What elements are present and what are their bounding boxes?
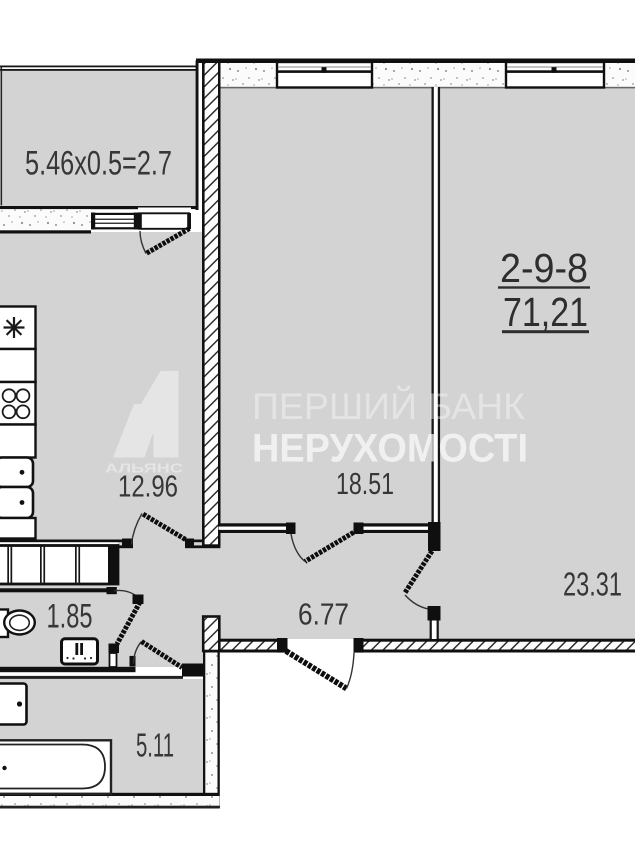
svg-text:5.11: 5.11: [136, 728, 174, 765]
svg-text:ПЕРШИЙ БАНК: ПЕРШИЙ БАНК: [252, 385, 525, 427]
svg-text:23.31: 23.31: [563, 567, 622, 604]
svg-text:2-9-8: 2-9-8: [500, 245, 588, 291]
svg-text:НЕРУХОМОСТІ: НЕРУХОМОСТІ: [252, 427, 528, 471]
svg-text:1.85: 1.85: [47, 598, 93, 636]
svg-text:АЛЬЯНС: АЛЬЯНС: [105, 462, 183, 476]
svg-text:5.46x0.5=2.7: 5.46x0.5=2.7: [25, 145, 172, 183]
svg-text:18.51: 18.51: [336, 466, 394, 501]
svg-text:71,21: 71,21: [503, 289, 588, 335]
svg-text:6.77: 6.77: [298, 597, 349, 632]
